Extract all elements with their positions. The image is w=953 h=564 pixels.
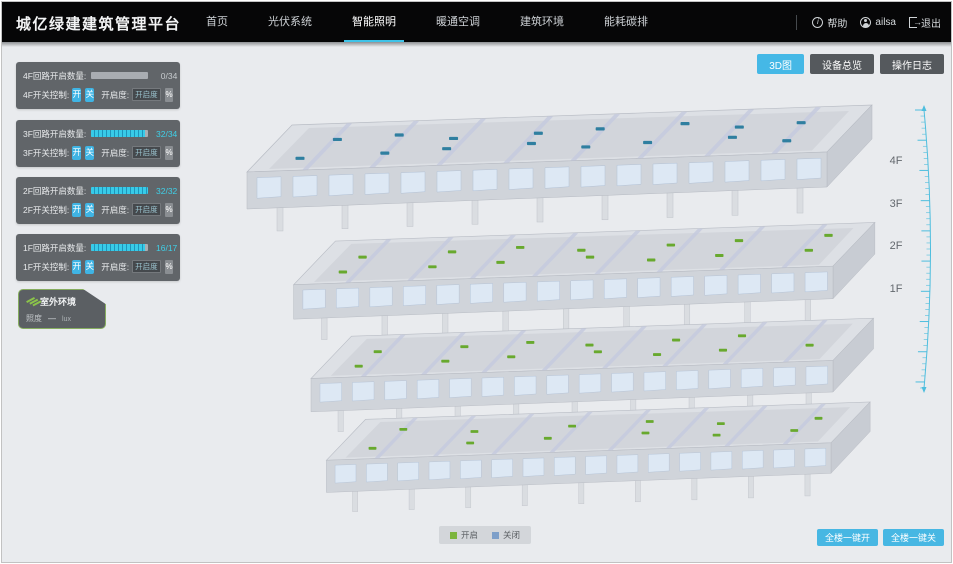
logout-label: 退出 bbox=[921, 15, 941, 30]
floor-off-button[interactable]: 关 bbox=[85, 260, 94, 274]
circuit-progress-bar bbox=[91, 244, 148, 251]
status-legend: 开启 关闭 bbox=[439, 526, 531, 544]
circuit-count-value: 32/32 bbox=[154, 186, 177, 196]
floor-panel-1f: 1F回路开启数量: 16/17 1F开关控制: 开 关 开启度: % bbox=[16, 234, 180, 281]
floor-on-button[interactable]: 开 bbox=[72, 260, 81, 274]
nav-item-pv-system[interactable]: 光伏系统 bbox=[260, 2, 320, 42]
nav-item-smart-lighting[interactable]: 智能照明 bbox=[344, 2, 404, 42]
percent-button[interactable]: % bbox=[165, 260, 173, 274]
logout-button[interactable]: 退出 bbox=[909, 15, 941, 30]
circle-info-icon bbox=[812, 17, 823, 28]
circuit-progress-bar bbox=[91, 187, 148, 194]
outdoor-env-panel: 室外环境 照度 — lux bbox=[18, 289, 106, 329]
switch-control-label: 4F开关控制: bbox=[23, 89, 69, 101]
zoom-scale-slider[interactable] bbox=[908, 104, 944, 394]
illuminance-unit: lux bbox=[62, 316, 71, 323]
openness-label: 开启度: bbox=[101, 204, 129, 216]
nav-shadow bbox=[2, 42, 951, 47]
circuit-count-label: 1F回路开启数量: bbox=[23, 242, 86, 254]
percent-button[interactable]: % bbox=[165, 203, 173, 217]
user-menu[interactable]: ailsa bbox=[860, 17, 896, 28]
outdoor-env-title: 室外环境 bbox=[40, 295, 76, 308]
illuminance-label: 照度 bbox=[26, 313, 42, 324]
nav-item-home[interactable]: 首页 bbox=[198, 2, 236, 42]
circuit-progress-bar bbox=[91, 130, 148, 137]
nav-item-building-env[interactable]: 建筑环境 bbox=[512, 2, 572, 42]
main-menu: 首页 光伏系统 智能照明 暖通空调 建筑环境 能耗碳排 bbox=[198, 2, 656, 42]
switch-control-label: 1F开关控制: bbox=[23, 261, 69, 273]
floor-label-2f[interactable]: 2F bbox=[884, 240, 908, 252]
legend-off-item: 关闭 bbox=[492, 529, 520, 541]
floor-on-button[interactable]: 开 bbox=[72, 203, 81, 217]
openness-label: 开启度: bbox=[101, 89, 129, 101]
building-floor-4F bbox=[247, 105, 872, 231]
openness-input[interactable] bbox=[132, 88, 161, 101]
openness-input[interactable] bbox=[132, 146, 161, 159]
building-3d-view[interactable] bbox=[227, 97, 882, 527]
help-button[interactable]: 帮助 bbox=[812, 15, 847, 30]
square-swatch-on bbox=[450, 532, 457, 539]
circuit-count-value: 0/34 bbox=[154, 71, 177, 81]
square-swatch-off bbox=[492, 532, 499, 539]
floor-label-1f[interactable]: 1F bbox=[884, 283, 908, 295]
view-toolbar: 3D图 设备总览 操作日志 bbox=[757, 54, 944, 74]
circuit-count-value: 32/34 bbox=[154, 129, 177, 139]
help-label: 帮助 bbox=[827, 15, 847, 30]
switch-control-label: 3F开关控制: bbox=[23, 147, 69, 159]
nav-item-hvac[interactable]: 暖通空调 bbox=[428, 2, 488, 42]
all-floors-off-button[interactable]: 全楼一键关 bbox=[883, 529, 944, 546]
operation-log-button[interactable]: 操作日志 bbox=[880, 54, 944, 74]
openness-input[interactable] bbox=[132, 260, 161, 273]
building-floor-1F bbox=[326, 402, 870, 512]
app-title: 城亿绿建建筑管理平台 bbox=[16, 13, 181, 34]
view-3d-button[interactable]: 3D图 bbox=[757, 54, 804, 74]
floor-panel-2f: 2F回路开启数量: 32/32 2F开关控制: 开 关 开启度: % bbox=[16, 177, 180, 224]
rays-icon bbox=[26, 298, 36, 306]
openness-label: 开启度: bbox=[101, 261, 129, 273]
circuit-count-label: 2F回路开启数量: bbox=[23, 185, 86, 197]
switch-control-label: 2F开关控制: bbox=[23, 204, 69, 216]
floor-label-3f[interactable]: 3F bbox=[884, 198, 908, 210]
circuit-count-label: 4F回路开启数量: bbox=[23, 70, 86, 82]
floor-off-button[interactable]: 关 bbox=[85, 203, 94, 217]
openness-label: 开启度: bbox=[101, 147, 129, 159]
floor-off-button[interactable]: 关 bbox=[85, 146, 94, 160]
legend-off-label: 关闭 bbox=[503, 529, 520, 541]
floor-on-button[interactable]: 开 bbox=[72, 88, 81, 102]
app-root: 城亿绿建建筑管理平台 首页 光伏系统 智能照明 暖通空调 建筑环境 能耗碳排 帮… bbox=[1, 1, 952, 563]
percent-button[interactable]: % bbox=[165, 146, 173, 160]
device-overview-button[interactable]: 设备总览 bbox=[810, 54, 874, 74]
floor-off-button[interactable]: 关 bbox=[85, 88, 94, 102]
floor-panel-3f: 3F回路开启数量: 32/34 3F开关控制: 开 关 开启度: % bbox=[16, 120, 180, 167]
floor-panel-4f: 4F回路开启数量: 0/34 4F开关控制: 开 关 开启度: % bbox=[16, 62, 180, 109]
floor-on-button[interactable]: 开 bbox=[72, 146, 81, 160]
nav-item-energy-carbon[interactable]: 能耗碳排 bbox=[596, 2, 656, 42]
exit-arrow-icon bbox=[909, 17, 917, 28]
username-label: ailsa bbox=[875, 17, 896, 28]
circle-user-icon bbox=[860, 17, 871, 28]
legend-on-item: 开启 bbox=[450, 529, 478, 541]
divider bbox=[796, 15, 797, 30]
circuit-count-value: 16/17 bbox=[154, 243, 177, 253]
circuit-count-label: 3F回路开启数量: bbox=[23, 128, 86, 140]
illuminance-value: — bbox=[48, 314, 56, 323]
all-floors-on-button[interactable]: 全楼一键开 bbox=[817, 529, 878, 546]
openness-input[interactable] bbox=[132, 203, 161, 216]
legend-on-label: 开启 bbox=[461, 529, 478, 541]
circuit-progress-bar bbox=[91, 72, 148, 79]
percent-button[interactable]: % bbox=[165, 88, 173, 102]
floor-label-4f[interactable]: 4F bbox=[884, 155, 908, 167]
user-area: 帮助 ailsa 退出 bbox=[796, 2, 941, 42]
top-nav: 城亿绿建建筑管理平台 首页 光伏系统 智能照明 暖通空调 建筑环境 能耗碳排 帮… bbox=[2, 2, 951, 42]
whole-building-actions: 全楼一键开 全楼一键关 bbox=[817, 529, 944, 546]
